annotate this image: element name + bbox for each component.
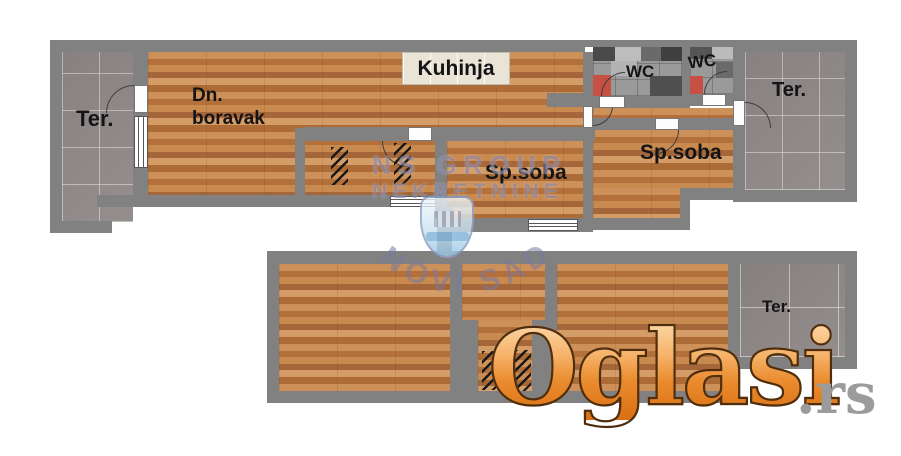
watermark-agency-name: NS GROUP — [372, 150, 567, 181]
window-frame-line — [143, 117, 144, 167]
wc-tile — [593, 47, 615, 61]
wall — [50, 221, 112, 233]
wall — [682, 40, 690, 108]
room-label-wc-right: WC — [687, 51, 717, 74]
room-label-living: Dn. boravak — [192, 84, 265, 130]
wc-tile — [661, 47, 682, 61]
radiator-symbol — [331, 147, 348, 185]
wall — [305, 127, 595, 141]
door-opening — [733, 100, 745, 126]
wall — [50, 40, 62, 233]
wall — [733, 40, 857, 52]
door-opening — [655, 118, 679, 130]
door-opening — [702, 94, 726, 106]
wall — [593, 218, 690, 230]
room-label-wc-left: WC — [626, 62, 654, 82]
room-label-bedroom-right: Sp.soba — [640, 141, 722, 165]
wall — [845, 40, 857, 202]
svg-text:NOVI SAD: NOVI SAD — [375, 235, 559, 301]
wall — [267, 251, 279, 403]
floorplan-image: Kuhinja Dn. boravak Ter. WC WC Sp.soba S… — [0, 0, 901, 456]
room-label-living-line1: Dn. — [192, 84, 265, 107]
wc-tile — [650, 76, 682, 96]
wall — [680, 188, 690, 218]
wall — [50, 40, 585, 52]
wall — [585, 40, 737, 47]
door-opening — [583, 106, 593, 128]
wc-tile — [641, 47, 661, 61]
floor-wc-corridor — [593, 108, 733, 118]
wc-tile — [690, 76, 703, 94]
room-label-terrace-left: Ter. — [76, 106, 114, 132]
floor-bedroom-right-b — [593, 188, 680, 218]
wall — [690, 188, 733, 200]
wc-tile — [615, 47, 641, 61]
wall — [845, 251, 857, 369]
window-frame-line — [138, 117, 139, 167]
wall — [295, 128, 305, 195]
wall — [583, 141, 593, 230]
kitchen-label-box: Kuhinja — [402, 52, 510, 85]
door-opening — [408, 127, 432, 141]
door-opening — [134, 85, 148, 113]
room-label-kitchen: Kuhinja — [418, 57, 495, 81]
wall — [733, 190, 857, 202]
oglasi-logo-tld: .rs — [796, 366, 877, 422]
door-opening — [599, 96, 625, 108]
window-symbol — [134, 116, 148, 168]
watermark-city-text: NOVI SAD — [375, 235, 559, 301]
room-label-terrace-right: Ter. — [772, 79, 806, 102]
oglasi-logo: Oglasi — [488, 316, 838, 420]
room-label-living-line2: boravak — [192, 107, 265, 130]
